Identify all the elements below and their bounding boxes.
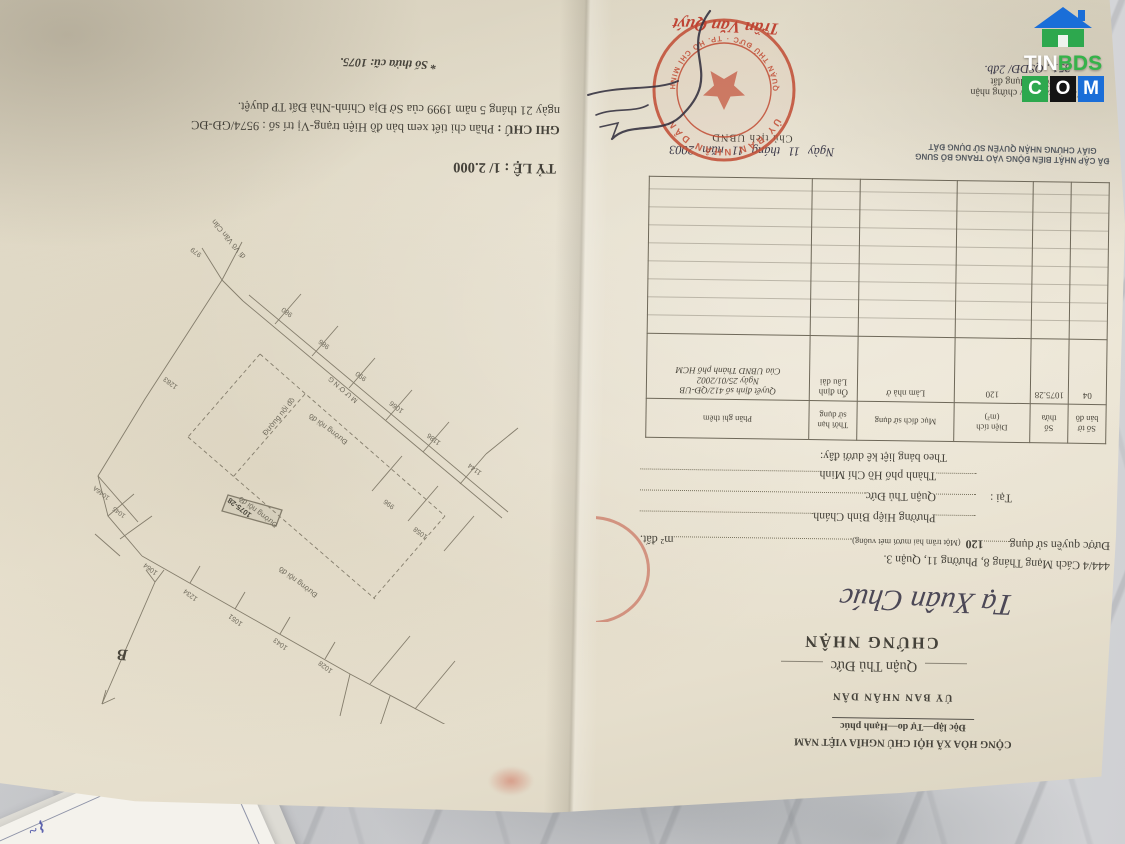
cell-muc-dich: Làm nhà ở [857, 336, 955, 402]
dotted-fill [640, 510, 814, 523]
national-motto-line1: CỘNG HÒA XÃ HỘI CHỦ NGHĨA VIỆT NAM [742, 735, 1064, 750]
signature-scribble [560, 0, 790, 164]
brand-com-tiles: C O M [1002, 76, 1124, 102]
canal-label: MƯƠNG [326, 373, 360, 403]
usage-label: Được quyền sử dụng [1010, 537, 1111, 553]
at-district: Quận Thủ Đức [865, 489, 936, 505]
dotted-fill [984, 540, 1010, 552]
road-label: Đường nội đồ [277, 565, 319, 600]
parcel-number: 1051 [227, 612, 244, 627]
certificate-paper: * Số thửa cũ: 1075. GHI CHÚ : Phần chi t… [0, 0, 1125, 816]
map-lines [95, 242, 518, 724]
parcel-number: 1046A [91, 484, 111, 501]
road-direction-label: đi Võ Văn Cân [210, 218, 248, 261]
map-note: GHI CHÚ : Phần chi tiết xem bản đồ Hiện … [108, 83, 561, 139]
empty-ruled-rows [647, 176, 1109, 339]
national-motto-line2: Độc lập—Tự do—Hạnh phúc [832, 717, 974, 734]
cadastral-map: 979 980 986 990 1066 1186 1144 996 1058 … [50, 204, 570, 724]
brand-tin: TIN [1024, 52, 1058, 75]
col-so-to: Số tờ bản đồ [1068, 404, 1107, 444]
usage-area: 120 [966, 536, 984, 551]
parcel-number: 996 [383, 497, 397, 510]
listing-intro: Theo bảng liệt kê dưới đây: [742, 443, 947, 464]
cell-so-to: 04 [1068, 339, 1107, 405]
map-labels: 979 980 986 990 1066 1186 1144 996 1058 … [91, 218, 483, 674]
usage-line: Được quyền sử dụng 120 (Một trăm hai mươ… [640, 527, 1110, 554]
parcel-number: 1028 [317, 659, 334, 674]
road-label: Đường nội đồ [307, 412, 349, 447]
parcel-number: 1283 [162, 375, 179, 390]
old-parcel-note: * Số thửa cũ: 1075. [292, 43, 438, 72]
tile-o: O [1050, 76, 1076, 102]
watermark-logo: TINBDS C O M [1002, 4, 1124, 96]
map-scale-label: TỶ LỆ : 1/ 2.000 [388, 148, 556, 176]
at-ward: Phường Hiệp Bình Chánh [813, 509, 936, 526]
brand-wordmark: TINBDS [1002, 53, 1124, 74]
cell-dien-tich: 120 [954, 338, 1031, 404]
usage-area-words: (Một trăm hai mươi mét vuông) [852, 536, 961, 548]
parcel-number: 990 [355, 369, 369, 382]
leader-line [925, 663, 967, 673]
at-label: Tại : [990, 490, 1012, 505]
col-thoi-han: Thời hạn sử dụng [809, 401, 858, 441]
location-block: Tại : Phường Hiệp Bình Chánh Quận Thủ Đứ… [640, 457, 1013, 526]
issuer-fill: Quận Thủ Đức [831, 656, 918, 674]
cell-so-thua: 1075.28 [1030, 339, 1069, 405]
brand-bds: BDS [1058, 52, 1102, 75]
update-stamp-text: ĐÃ CẬP NHẬT BIẾN ĐỘNG VÀO TRANG BỔ SUNG … [906, 129, 1118, 166]
tile-c: C [1022, 76, 1048, 102]
parcel-number: 1064 [142, 561, 159, 576]
map-note-label: GHI CHÚ : [497, 122, 560, 137]
parcel-number: 1058 [412, 525, 429, 540]
col-so-thua: Số thửa [1030, 404, 1069, 444]
certify-title: CHỨNG NHẬN [786, 627, 956, 653]
partial-red-stamp [596, 514, 654, 622]
col-ghi-them: Phần ghi thêm [646, 398, 810, 439]
road-label: Đường nội đồ [261, 396, 297, 438]
national-header: CỘNG HÒA XÃ HỘI CHỦ NGHĨA VIỆT NAM Độc l… [742, 704, 1065, 750]
land-parcel-table: Số tờ bản đồ Số thửa Diện tích (m²) Mục … [646, 176, 1110, 444]
issuer-fill-row: Quận Thủ Đức [748, 648, 1000, 676]
dotted-fill [936, 473, 976, 485]
parcel-number: 979 [190, 245, 204, 258]
leader-line [781, 661, 823, 671]
tile-m: M [1078, 76, 1104, 102]
col-dien-tich: Diện tích (m²) [954, 403, 1031, 443]
dotted-fill [936, 494, 976, 506]
cell-ghi-them: Quyết định số 412/QĐ-UB Ngày 25/01/2002 … [646, 333, 810, 400]
parcel-number: 1186 [426, 431, 442, 446]
photo-of-land-certificate: ~⌇ * Số thửa cũ: 1075. GHI CHÚ : Phần ch… [0, 0, 1125, 844]
dotted-fill [936, 515, 976, 527]
map-note-text: Phần chi tiết xem bản đồ Hiện trạng-Vị t… [191, 118, 494, 136]
issuer-title: ỦY BAN NHÂN DÂN [798, 685, 986, 704]
parcel-number: 1234 [182, 587, 199, 602]
col-muc-dich: Mục đích sử dụng [857, 401, 955, 441]
cell-thoi-han: Ổn định Lâu dài [809, 336, 858, 402]
parcel-number: 986 [318, 337, 332, 350]
house-icon [1030, 4, 1096, 48]
at-city: Thành phố Hồ Chí Minh [819, 467, 936, 484]
dotted-fill [673, 536, 852, 550]
parcel-number: 980 [281, 305, 295, 318]
red-ink-smudge [488, 766, 534, 796]
north-arrow-glyph: B [116, 645, 129, 663]
